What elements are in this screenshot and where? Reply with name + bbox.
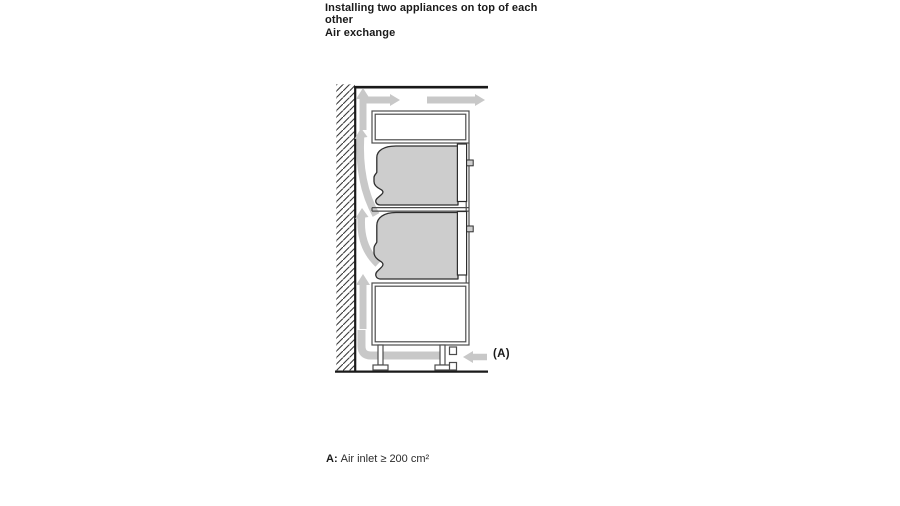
base-cabinet-inner [375,286,466,342]
installation-diagram [330,78,530,378]
lower-appliance-handle [467,226,474,232]
air-inlet-arrow [463,351,487,363]
airflow-under-cabinet [362,330,441,356]
title-line-1: Installing two appliances on top of each [325,2,585,14]
airflow-curve-upper [360,136,376,215]
airflow-arrow-up-top [356,88,370,130]
airflow-arrow-right-inner [366,94,400,106]
left-leg [378,345,383,365]
airflow-arrow-up-mid [356,274,370,329]
right-foot [435,365,450,370]
page-title: Installing two appliances on top of each… [325,2,585,39]
left-foot [373,365,388,370]
airflow-curve-lower-head [355,208,369,219]
plinth-vent-lower [450,363,457,371]
legend-key: A: [326,453,338,465]
legend-caption: A:Air inlet ≥ 200 cm² [326,453,429,466]
upper-appliance-front-panel [457,144,466,202]
top-compartment-outer [372,111,469,143]
air-exchange-diagram-svg [330,78,530,378]
title-line-2: other [325,14,585,26]
upper-appliance-body [374,146,458,205]
plinth-vent-upper [450,347,457,355]
base-cabinet-outer [372,283,469,345]
wall-hatch [336,84,355,372]
title-line-3: Air exchange [325,27,585,39]
air-inlet-label: (A) [493,348,510,360]
lower-appliance-body [374,213,458,280]
legend-text: Air inlet ≥ 200 cm² [341,453,430,465]
top-compartment-inner [375,114,466,140]
right-leg [440,345,445,365]
upper-appliance-handle [467,160,474,166]
airflow-arrow-right-outer [427,94,485,106]
lower-appliance-front-panel [457,212,466,276]
